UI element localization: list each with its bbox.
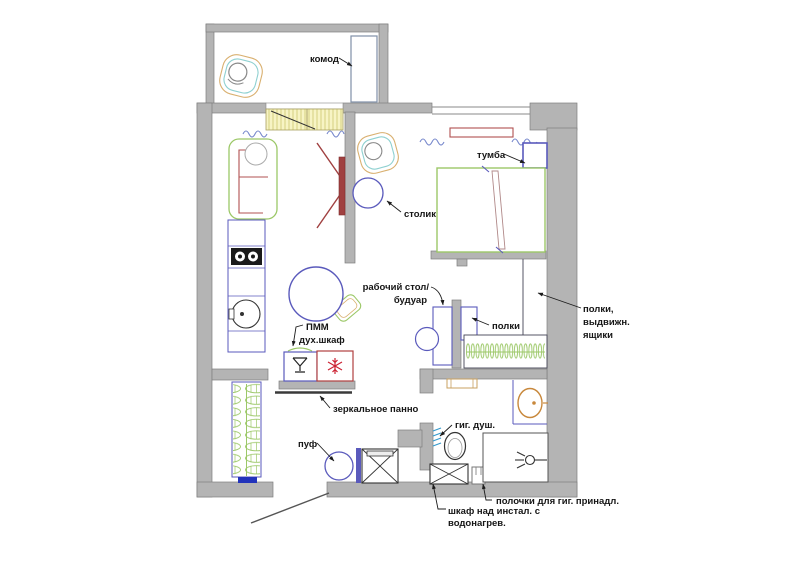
label-stolik: столик bbox=[404, 209, 436, 220]
appliance-base bbox=[279, 381, 355, 389]
label-komod: комод bbox=[310, 54, 339, 65]
hall-wall-piece bbox=[398, 430, 422, 447]
balcony-armchair bbox=[217, 52, 265, 100]
floor-plan-drawing: комод тумба столик рабочий стол/ будуар … bbox=[0, 0, 800, 565]
washer-lid bbox=[367, 451, 393, 456]
balcony-top-wall bbox=[206, 24, 388, 32]
kitchen-hall-stub bbox=[212, 369, 268, 380]
kitchen-counter bbox=[228, 220, 265, 352]
hall-bench bbox=[447, 379, 477, 388]
stolik-leader bbox=[387, 201, 401, 212]
label-desk-line2: будуар bbox=[394, 295, 427, 306]
balcony-left-wall bbox=[206, 24, 214, 104]
balcony-door-block bbox=[266, 109, 343, 130]
curtain-icon bbox=[420, 139, 444, 145]
label-shelves-line2: выдвижн. bbox=[583, 317, 630, 328]
bedroom bbox=[353, 130, 547, 253]
bed-bench-knob bbox=[457, 259, 467, 266]
top-right-corner-wall bbox=[530, 103, 577, 130]
top-wall-middle bbox=[343, 103, 432, 113]
desk-chair bbox=[416, 328, 439, 351]
stolik-table bbox=[353, 178, 383, 208]
bathroom-top-wall bbox=[420, 369, 547, 379]
balcony-window-frame bbox=[266, 103, 343, 109]
closet-partition bbox=[452, 300, 461, 368]
komod-leader bbox=[339, 58, 352, 66]
label-shkaf-line2: водонагрев. bbox=[448, 518, 506, 529]
living-kitchen bbox=[228, 139, 363, 393]
dishwasher-door-arc bbox=[288, 348, 312, 351]
tumba-leader bbox=[504, 154, 525, 163]
left-wall bbox=[197, 103, 212, 497]
appliances bbox=[284, 348, 353, 381]
right-wall bbox=[547, 128, 577, 497]
mirror-leader bbox=[320, 396, 330, 408]
washing-machine bbox=[356, 448, 398, 483]
desk-leader bbox=[431, 287, 443, 305]
toilet-bowl bbox=[445, 433, 466, 460]
tumba-nightstand bbox=[523, 143, 547, 168]
komod-chest bbox=[351, 36, 377, 102]
bed bbox=[437, 166, 545, 253]
label-mirror: зеркальное панно bbox=[333, 404, 419, 415]
hall-wardrobe bbox=[232, 382, 261, 483]
shower-area bbox=[483, 433, 548, 482]
balcony bbox=[217, 36, 377, 102]
balcony-right-wall bbox=[379, 24, 388, 104]
closet-boudoir bbox=[416, 259, 548, 388]
bedroom-armchair bbox=[355, 130, 402, 177]
label-pmm-line2: дух.шкаф bbox=[299, 335, 345, 346]
wardrobe-base bbox=[238, 477, 257, 483]
bottom-wall-left bbox=[197, 482, 273, 497]
cooktop-icon bbox=[231, 248, 262, 265]
cabinet-side bbox=[356, 448, 361, 483]
label-shelves-line1: полки, bbox=[583, 304, 614, 315]
curtain-icon bbox=[243, 131, 267, 137]
sofa-pillow bbox=[245, 143, 267, 165]
curtain-icon bbox=[327, 131, 344, 137]
label-shelves-line3: ящики bbox=[583, 330, 613, 341]
bathroom bbox=[430, 380, 548, 484]
label-pmm-line1: ПММ bbox=[306, 322, 329, 333]
bathroom-door-stub bbox=[420, 369, 433, 393]
entrance-door-swing bbox=[251, 493, 329, 523]
label-puf: пуф bbox=[298, 439, 317, 450]
bath-sink bbox=[513, 380, 548, 424]
label-desk-line1: рабочий стол/ bbox=[363, 282, 430, 293]
folding-door bbox=[317, 143, 345, 228]
sofa bbox=[229, 139, 277, 219]
label-tumba: тумба bbox=[477, 150, 506, 161]
label-polki: полки bbox=[492, 321, 520, 332]
radiator bbox=[450, 128, 513, 137]
floor-plan-page: комод тумба столик рабочий стол/ будуар … bbox=[0, 0, 800, 565]
label-shkaf-line1: шкаф над инстал. с bbox=[448, 506, 540, 517]
label-gig-dush: гиг. душ. bbox=[455, 420, 495, 431]
dining-table bbox=[289, 267, 343, 321]
hygienic-shower-hatch bbox=[433, 428, 441, 446]
wardrobe-rod bbox=[464, 335, 547, 368]
sink-bowl-icon bbox=[518, 389, 542, 418]
puf-leader bbox=[317, 443, 334, 461]
dining-set bbox=[287, 267, 362, 323]
